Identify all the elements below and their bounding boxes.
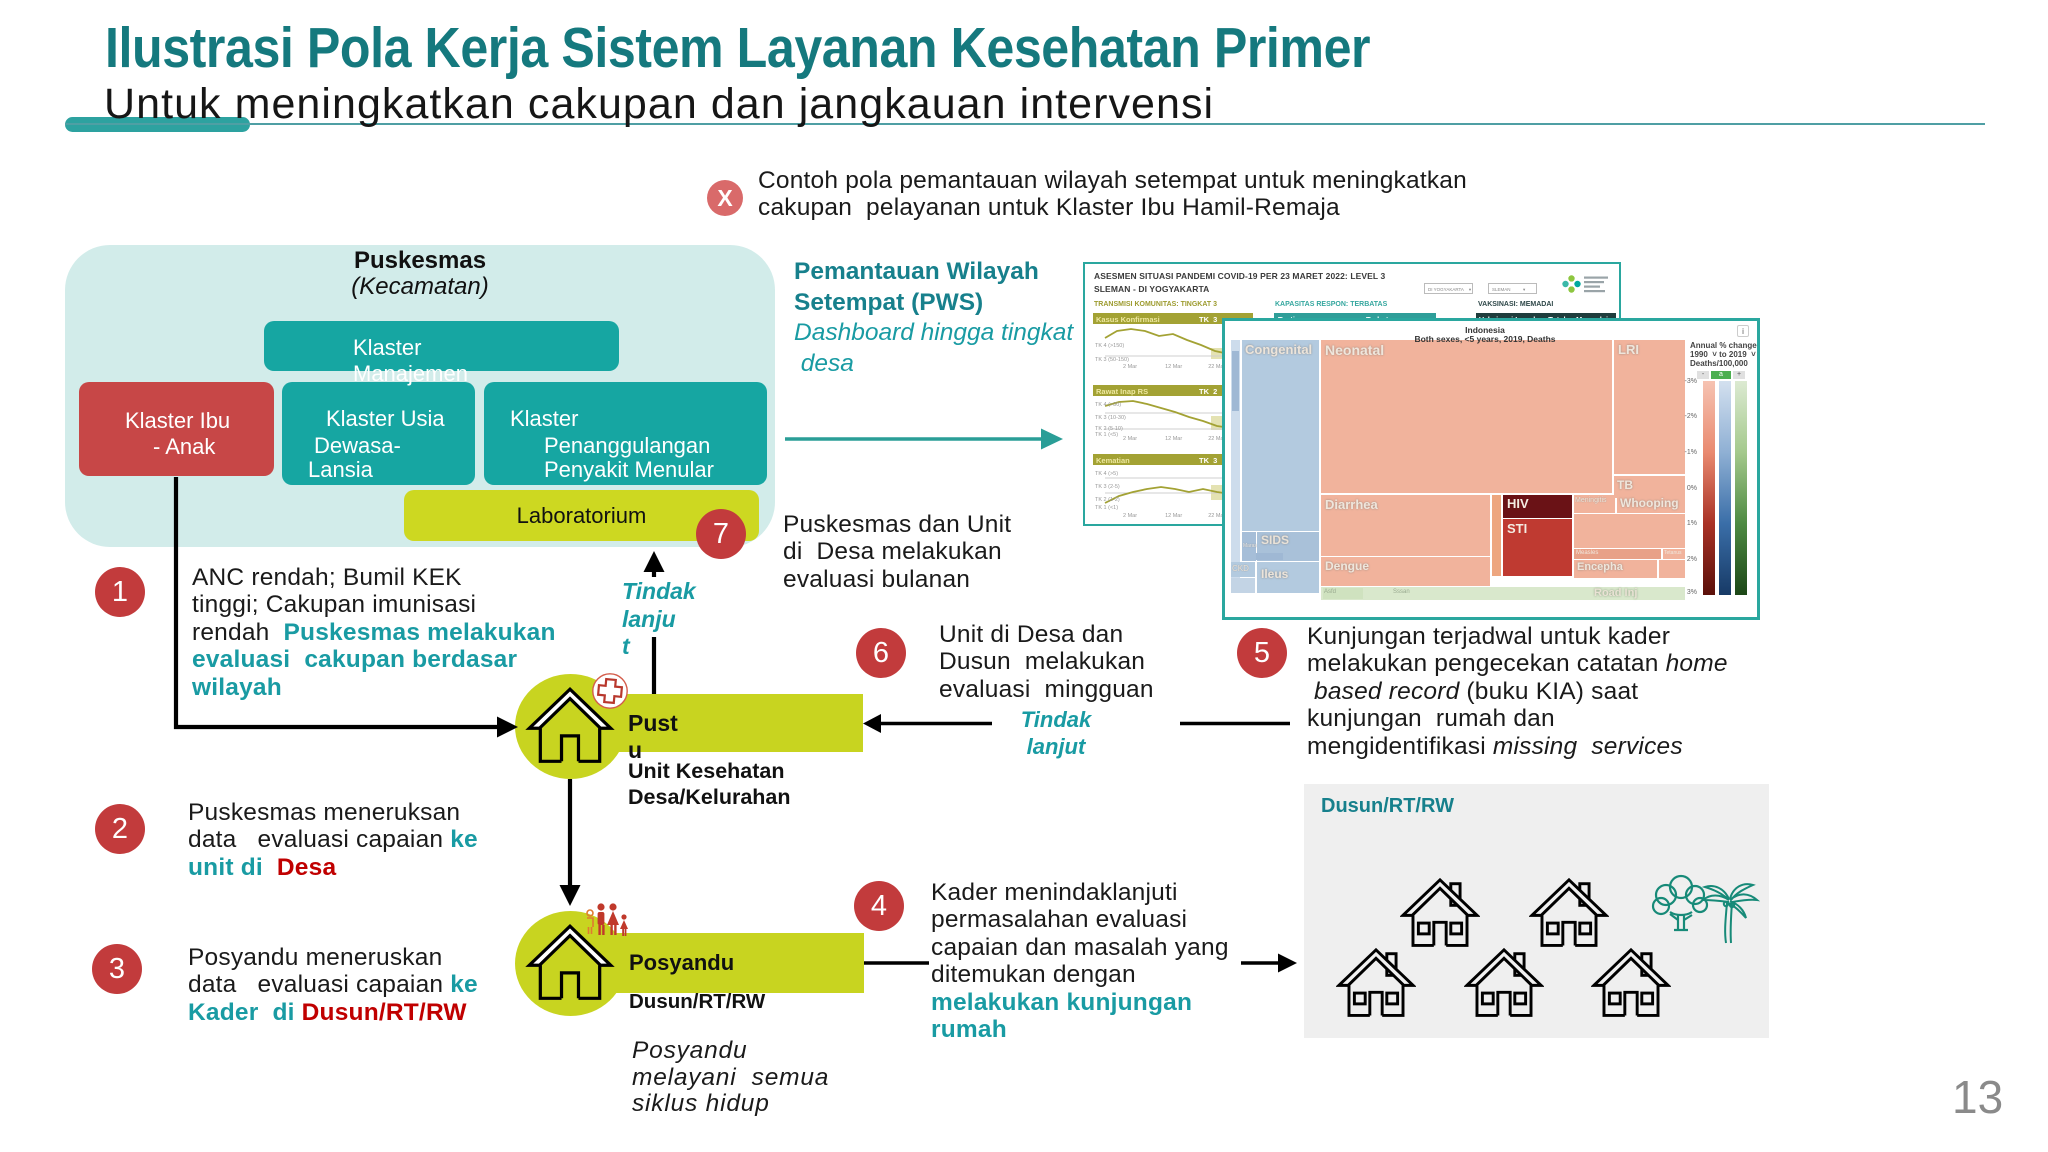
svg-text:TK 3 (2-5): TK 3 (2-5) <box>1095 484 1120 490</box>
svg-text:TK 4 (>5): TK 4 (>5) <box>1095 471 1118 477</box>
svg-text:TK 4 (>150): TK 4 (>150) <box>1095 343 1124 349</box>
svg-text:TK 3 (10-30): TK 3 (10-30) <box>1095 415 1126 421</box>
svg-text:TK 1 (<1): TK 1 (<1) <box>1095 505 1118 511</box>
svg-text:TK 2 (1-2): TK 2 (1-2) <box>1095 497 1120 503</box>
svg-text:TK 4 (>30): TK 4 (>30) <box>1095 402 1121 408</box>
svg-text:TK 3 (50-150): TK 3 (50-150) <box>1095 357 1129 363</box>
